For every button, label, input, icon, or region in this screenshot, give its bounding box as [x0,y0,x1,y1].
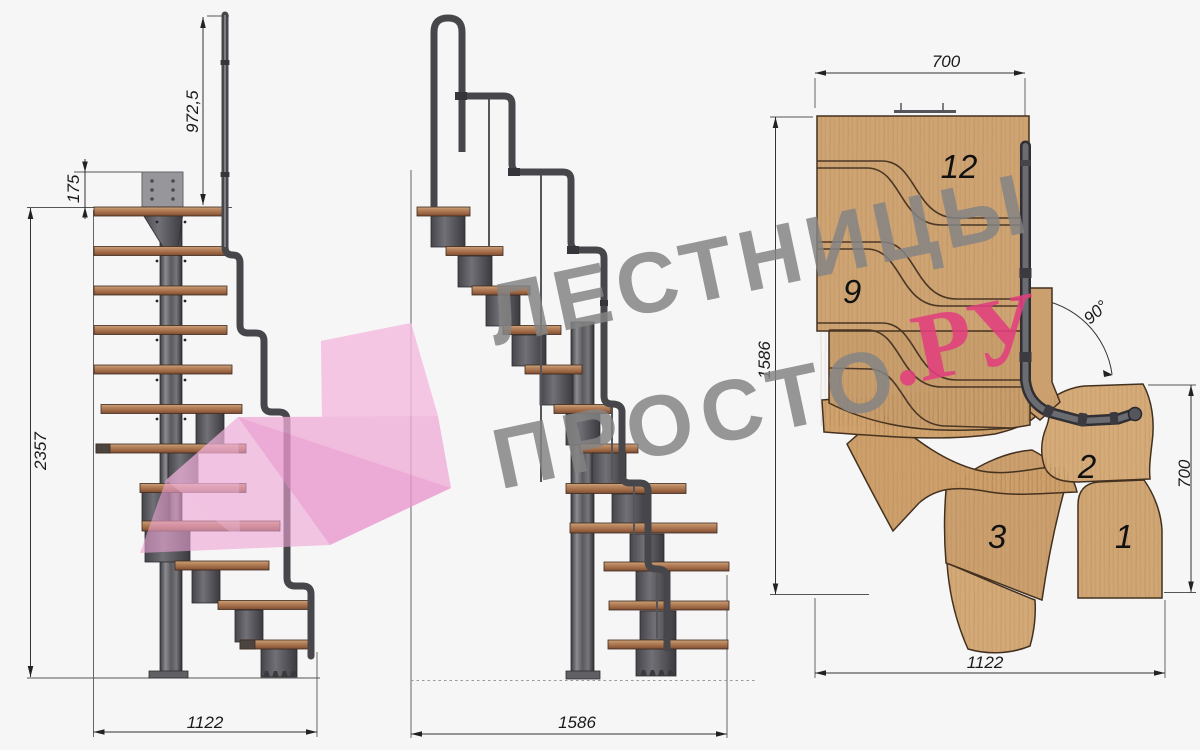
svg-text:1122: 1122 [967,653,1004,672]
svg-text:2: 2 [1077,448,1096,485]
svg-text:1122: 1122 [187,713,224,732]
svg-text:700: 700 [932,52,961,71]
svg-text:1586: 1586 [558,713,596,732]
svg-text:2357: 2357 [31,432,50,471]
svg-text:1: 1 [1115,518,1133,555]
svg-text:700: 700 [1175,459,1194,488]
svg-text:972,5: 972,5 [183,90,202,133]
svg-text:3: 3 [988,518,1007,555]
svg-text:175: 175 [64,174,83,203]
